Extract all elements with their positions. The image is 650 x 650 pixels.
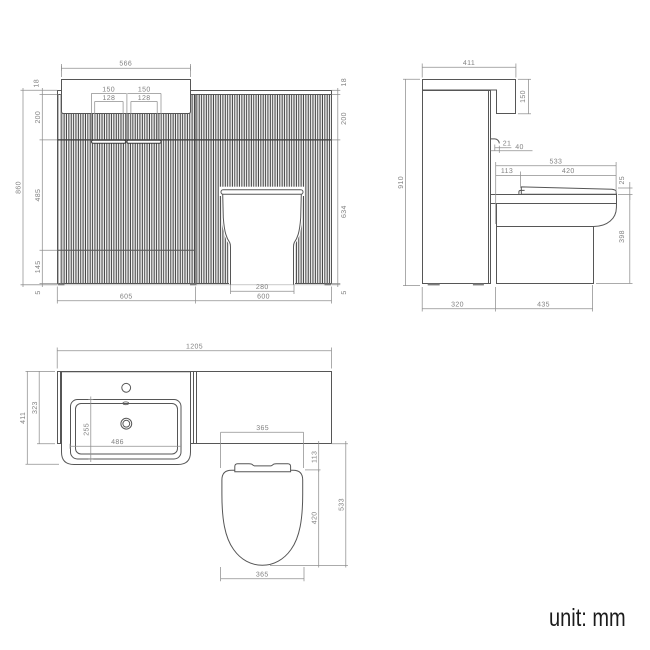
svg-text:150: 150	[520, 90, 527, 103]
svg-text:420: 420	[311, 512, 318, 525]
svg-text:5: 5	[35, 290, 42, 294]
svg-text:113: 113	[501, 168, 513, 175]
svg-text:150: 150	[102, 87, 115, 94]
svg-text:18: 18	[341, 78, 348, 87]
svg-text:25: 25	[619, 176, 626, 185]
svg-text:486: 486	[111, 439, 124, 446]
svg-text:1205: 1205	[186, 344, 203, 351]
svg-text:200: 200	[341, 112, 348, 125]
svg-text:420: 420	[562, 168, 575, 175]
svg-text:5: 5	[341, 290, 348, 294]
svg-text:605: 605	[120, 294, 133, 301]
svg-text:533: 533	[550, 158, 563, 165]
svg-text:365: 365	[256, 425, 269, 432]
svg-text:485: 485	[35, 189, 42, 202]
svg-text:128: 128	[103, 95, 116, 102]
svg-text:398: 398	[619, 230, 626, 243]
svg-text:860: 860	[16, 181, 23, 194]
svg-text:145: 145	[35, 261, 42, 274]
svg-text:365: 365	[256, 571, 269, 578]
svg-text:435: 435	[537, 301, 550, 308]
svg-text:113: 113	[311, 451, 318, 463]
svg-text:200: 200	[35, 111, 42, 124]
svg-text:255: 255	[83, 423, 90, 436]
svg-text:21: 21	[503, 141, 512, 148]
svg-text:280: 280	[256, 284, 269, 291]
svg-text:411: 411	[463, 60, 475, 67]
svg-text:40: 40	[515, 144, 524, 151]
svg-text:411: 411	[20, 412, 27, 424]
svg-text:533: 533	[338, 498, 345, 511]
svg-text:18: 18	[34, 79, 41, 88]
svg-text:128: 128	[138, 95, 151, 102]
svg-text:566: 566	[119, 61, 132, 68]
svg-text:323: 323	[32, 401, 39, 414]
svg-text:634: 634	[341, 205, 348, 218]
svg-text:320: 320	[451, 301, 464, 308]
svg-text:910: 910	[398, 176, 405, 189]
svg-text:150: 150	[138, 87, 151, 94]
svg-text:600: 600	[257, 294, 270, 301]
